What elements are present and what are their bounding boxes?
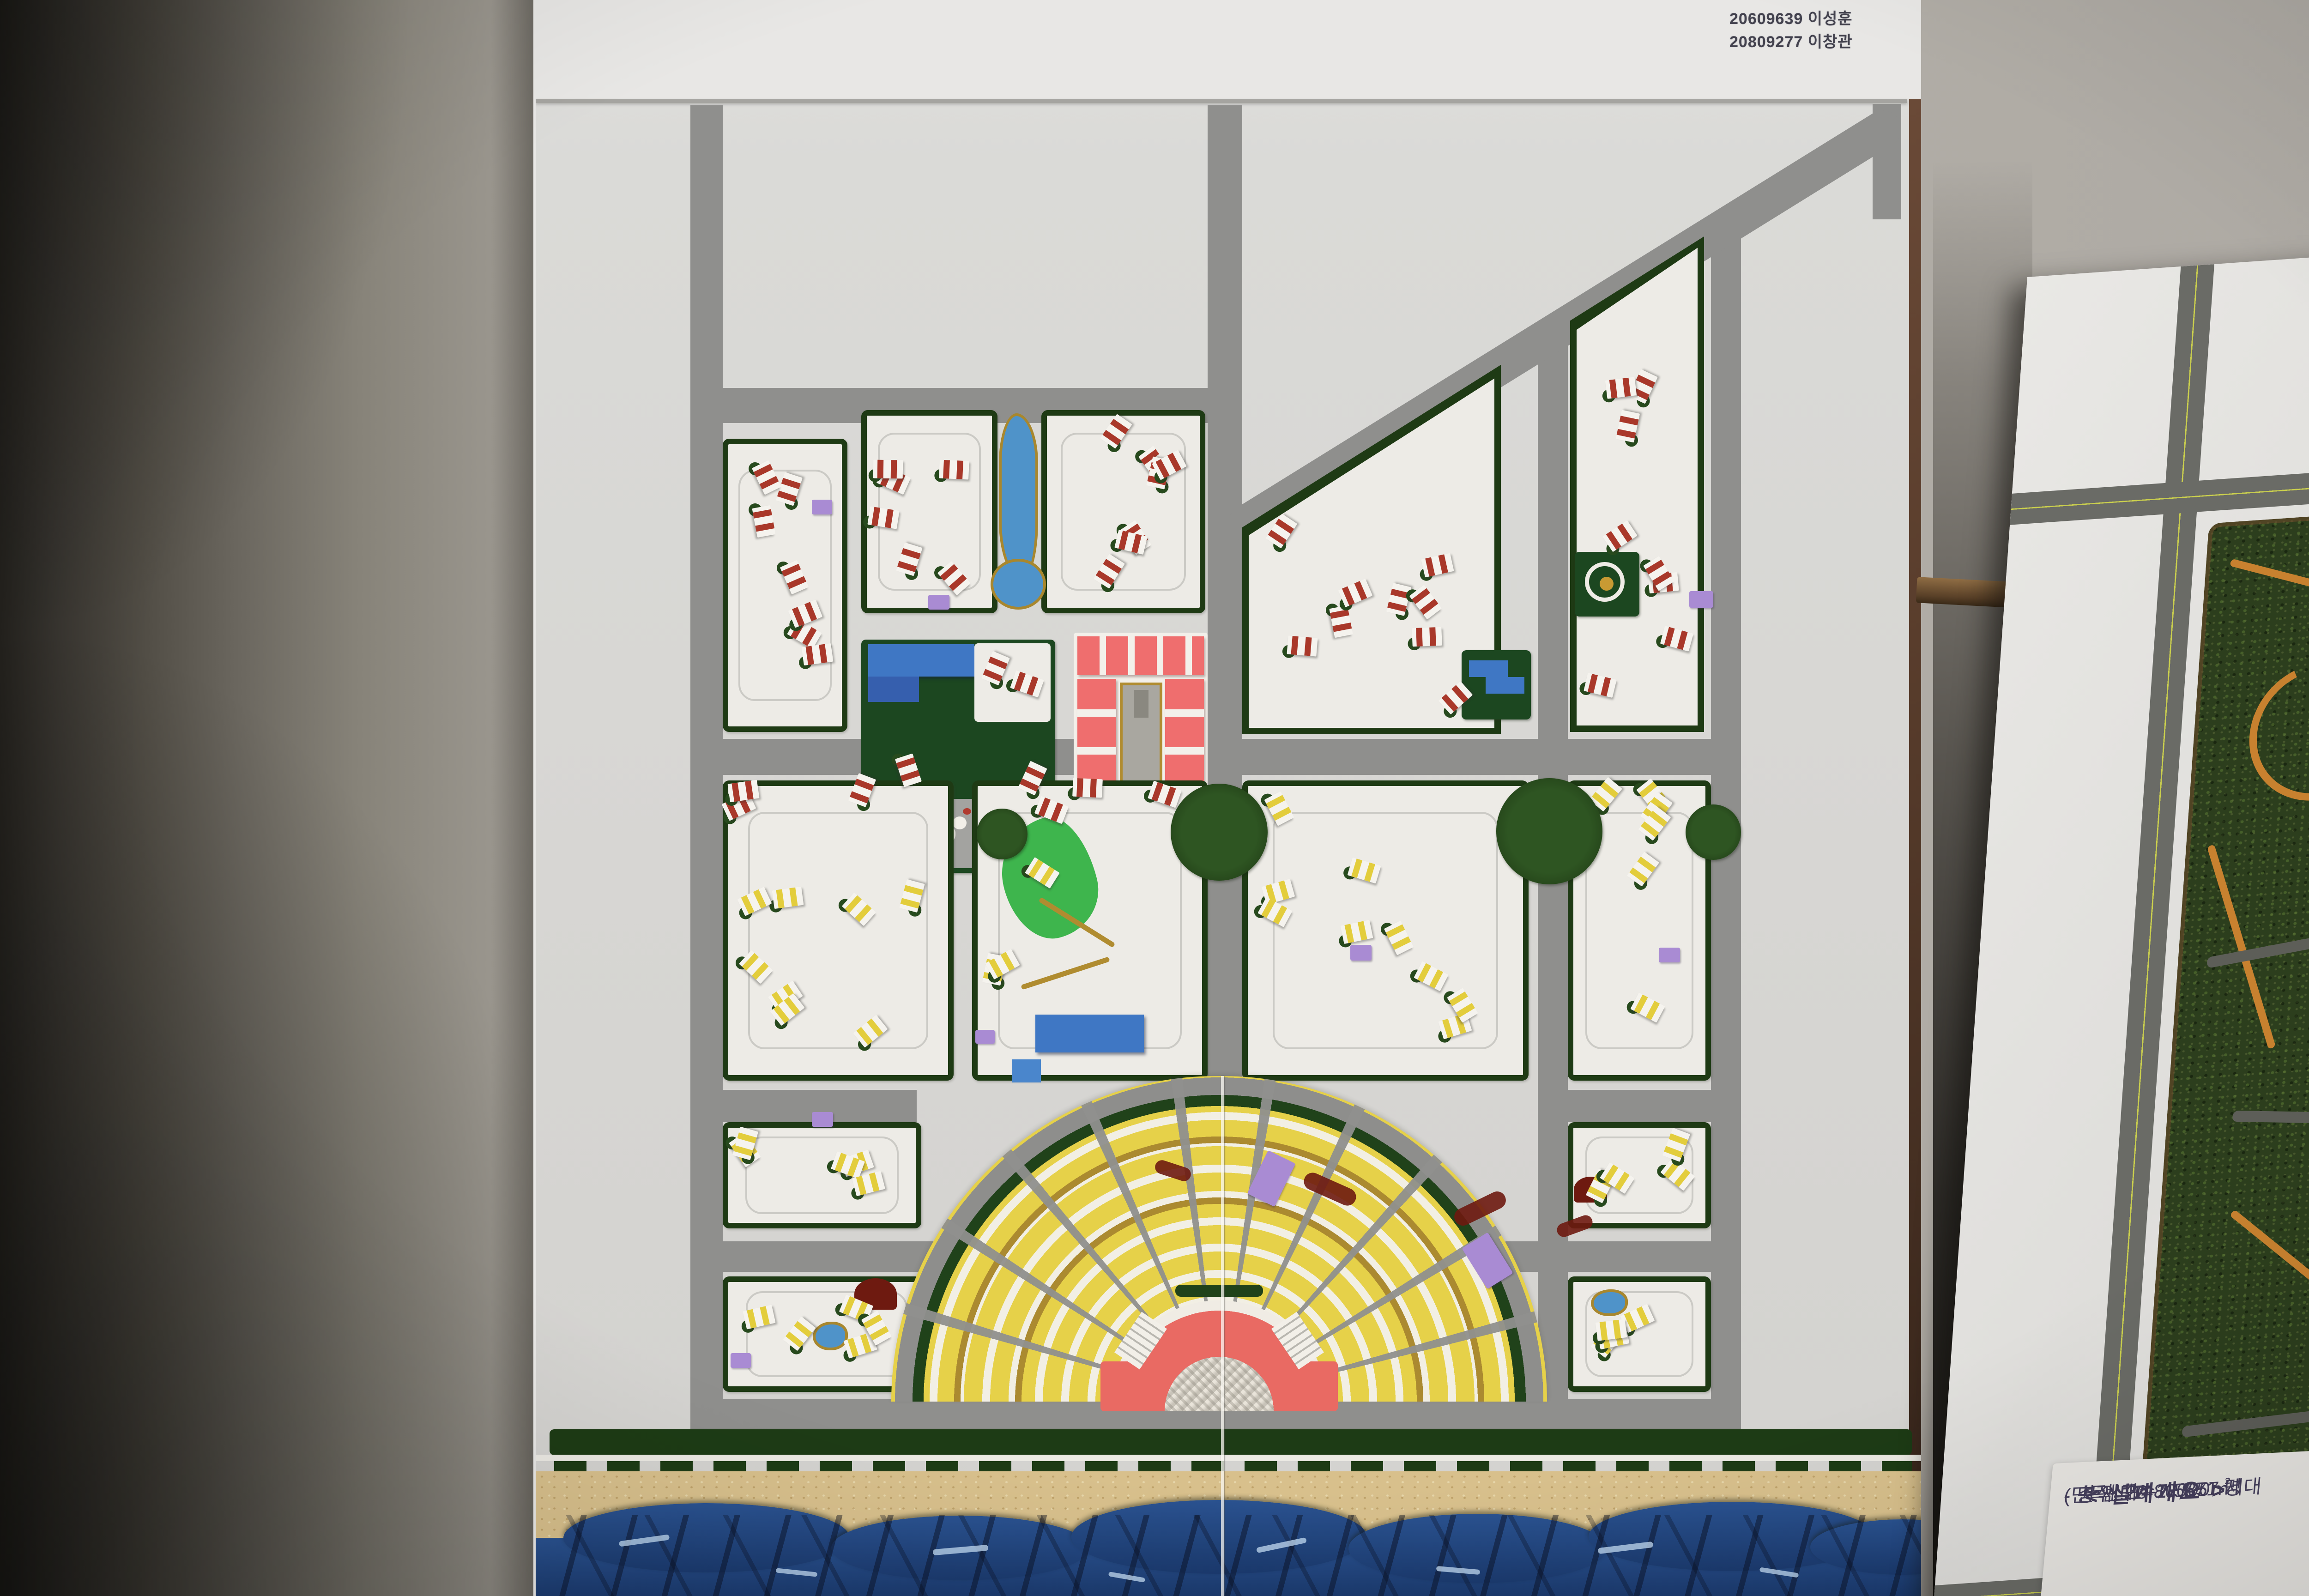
mini-plaza <box>1575 552 1639 617</box>
block-interior <box>1577 243 1698 725</box>
design-summary-label: < 설계개요 > - 면적 : 1480000㎡ - 총 인구 : 17,571… <box>2027 1446 2309 1596</box>
amphitheater-wing <box>1100 1361 1136 1411</box>
model-house <box>772 887 804 909</box>
road <box>2232 1111 2309 1128</box>
blue-building <box>868 677 919 702</box>
model-house <box>1596 1319 1627 1341</box>
duck-sculpture <box>953 816 967 829</box>
house-roof-stripe <box>1076 778 1083 797</box>
model-house <box>1072 778 1103 798</box>
blue-building <box>1012 1059 1041 1082</box>
purple-accent-building <box>812 1112 833 1127</box>
model-house <box>939 460 970 480</box>
mini-park <box>1462 650 1531 719</box>
blue-building <box>1469 660 1508 677</box>
tree-cluster <box>1171 784 1268 881</box>
house-roof-stripe <box>1430 627 1437 646</box>
board-cast-shadow <box>491 0 533 1596</box>
road <box>2182 1371 2309 1437</box>
tree-cluster <box>1686 804 1741 860</box>
house-roof-stripe <box>943 460 950 479</box>
photo-scene: 20609639 이성훈 20809277 이창관 <box>0 0 2309 1596</box>
model-house <box>802 643 834 665</box>
boardwalk-line <box>536 1455 1921 1461</box>
shrub-row <box>1175 1285 1263 1297</box>
flower-dot <box>963 808 971 815</box>
orange-path <box>2229 559 2309 624</box>
purple-accent-building <box>1659 948 1680 962</box>
label-line: (단독 : 20 <box>2062 1475 2150 1513</box>
model-house <box>1412 627 1442 647</box>
road <box>690 739 1741 775</box>
pink-block-row <box>1077 636 1204 675</box>
road <box>1505 1241 1741 1272</box>
courtyard-stage <box>1134 690 1148 718</box>
amphitheater-plaza <box>1165 1357 1274 1411</box>
river-pond <box>999 413 1038 580</box>
orange-path-arc <box>2227 646 2309 817</box>
pond <box>813 1322 848 1350</box>
road <box>690 1241 949 1272</box>
road <box>2207 890 2309 968</box>
road <box>2010 439 2309 525</box>
left-model-board: 20609639 이성훈 20809277 이창관 <box>533 0 1921 1596</box>
tree-cluster <box>977 809 1028 859</box>
shore-hedge-dashes <box>554 1461 1912 1471</box>
purple-accent-building <box>928 595 949 610</box>
road <box>690 1090 917 1122</box>
house-roof-stripe <box>891 460 897 479</box>
tree-cluster <box>1496 778 1602 884</box>
purple-accent-building <box>731 1353 751 1368</box>
sea-creases <box>536 1515 1921 1596</box>
purple-accent-building <box>1350 945 1372 961</box>
shore-hedge <box>550 1429 1912 1455</box>
house-roof-stripe <box>1090 779 1097 798</box>
model-house <box>1287 636 1318 657</box>
city-block <box>1570 236 1704 732</box>
model-house <box>867 507 899 529</box>
house-roof-stripe <box>1416 628 1423 646</box>
blue-building <box>1035 1015 1144 1052</box>
orange-path <box>2230 1209 2309 1411</box>
purple-accent-building <box>812 500 832 514</box>
model-house <box>873 460 903 479</box>
gold-path <box>1021 956 1110 990</box>
amphitheater-wing <box>1302 1361 1338 1411</box>
purple-accent-building <box>1689 591 1713 608</box>
road <box>1208 105 1242 1084</box>
road <box>1538 1090 1741 1122</box>
purple-accent-building <box>975 1030 995 1044</box>
house-roof-stripe <box>877 460 884 478</box>
blue-building <box>868 644 974 677</box>
house-roof-stripe <box>957 461 964 480</box>
pond <box>991 559 1046 610</box>
plaza-fountain <box>1600 577 1614 591</box>
model-house <box>1605 377 1637 399</box>
pond <box>1591 1289 1628 1316</box>
city-block <box>1568 1276 1711 1392</box>
blue-building <box>1486 677 1524 694</box>
wall-shadow-top-left <box>0 0 416 647</box>
city-model <box>536 0 1921 1596</box>
city-block <box>1041 410 1205 613</box>
city-block <box>723 780 954 1081</box>
panel-joint <box>1221 1076 1224 1596</box>
